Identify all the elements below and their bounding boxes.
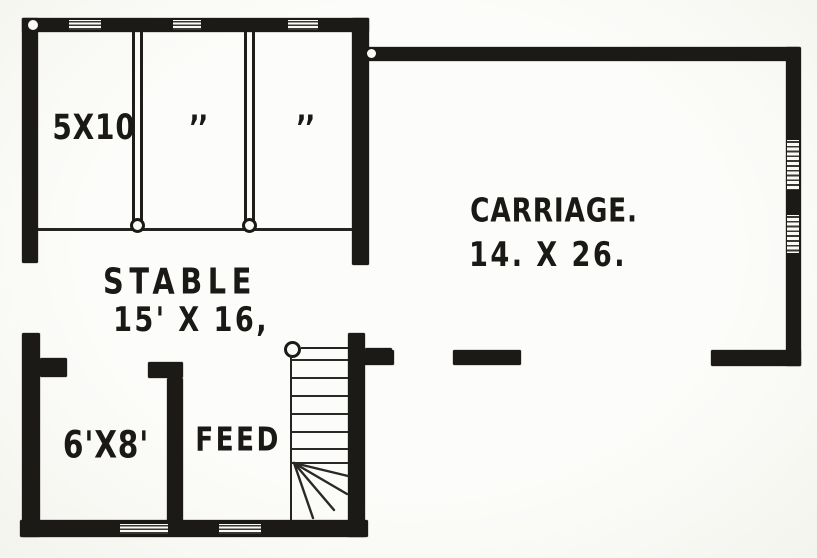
carriage-size-label: 14. X 26. — [469, 235, 627, 275]
carriage-top-wall — [363, 47, 800, 61]
ditto-mark: ’’ — [296, 108, 313, 148]
carriage-bottom-wall-segment — [453, 350, 521, 365]
storeroom-size-label: 6'X8' — [63, 424, 149, 467]
heel-post-icon — [130, 218, 145, 233]
ditto-mark: ’’ — [189, 108, 206, 148]
window-symbol — [171, 19, 203, 31]
window-symbol — [786, 138, 800, 192]
lower-left-wall — [22, 333, 40, 537]
stable-room-label: STABLE — [103, 262, 257, 303]
stair-tread — [292, 413, 348, 415]
newel-post-icon — [284, 341, 301, 358]
stair-tread — [292, 448, 348, 450]
window-symbol — [118, 523, 170, 535]
floor-plan: 5X10 ’’ ’’ CARRIAGE. 14. X 26. STABLE 15… — [0, 0, 817, 558]
corner-post-icon — [367, 49, 376, 58]
stall-partition — [244, 32, 255, 222]
feed-room-label: FEED — [195, 420, 281, 459]
stable-size-label: 15' X 16, — [113, 300, 269, 340]
lower-bottom-wall — [20, 520, 368, 537]
carriage-right-wall — [786, 47, 801, 366]
partition-jamb-stub — [148, 362, 183, 378]
storeroom-feed-partition — [167, 378, 183, 527]
stall-front-line — [38, 228, 352, 231]
stair-top-rail-line — [301, 347, 348, 349]
window-symbol — [786, 213, 800, 255]
stair-winder-treads — [290, 460, 352, 522]
window-symbol — [217, 523, 263, 535]
stairwell-jamb-stub — [365, 348, 392, 363]
stall-size-label: 5X10 — [52, 108, 135, 148]
corner-post-icon — [28, 20, 38, 30]
stair-tread — [292, 431, 348, 433]
door-jamb-stub — [40, 358, 67, 377]
stall-block-left-wall — [22, 18, 38, 263]
carriage-room-label: CARRIAGE. — [470, 191, 638, 230]
stair-tread — [292, 377, 348, 379]
heel-post-icon — [242, 218, 257, 233]
stair-tread — [292, 359, 348, 361]
carriage-bottom-wall-segment — [711, 350, 801, 366]
window-symbol — [67, 19, 103, 31]
stair-tread — [292, 395, 348, 397]
window-symbol — [286, 19, 320, 31]
